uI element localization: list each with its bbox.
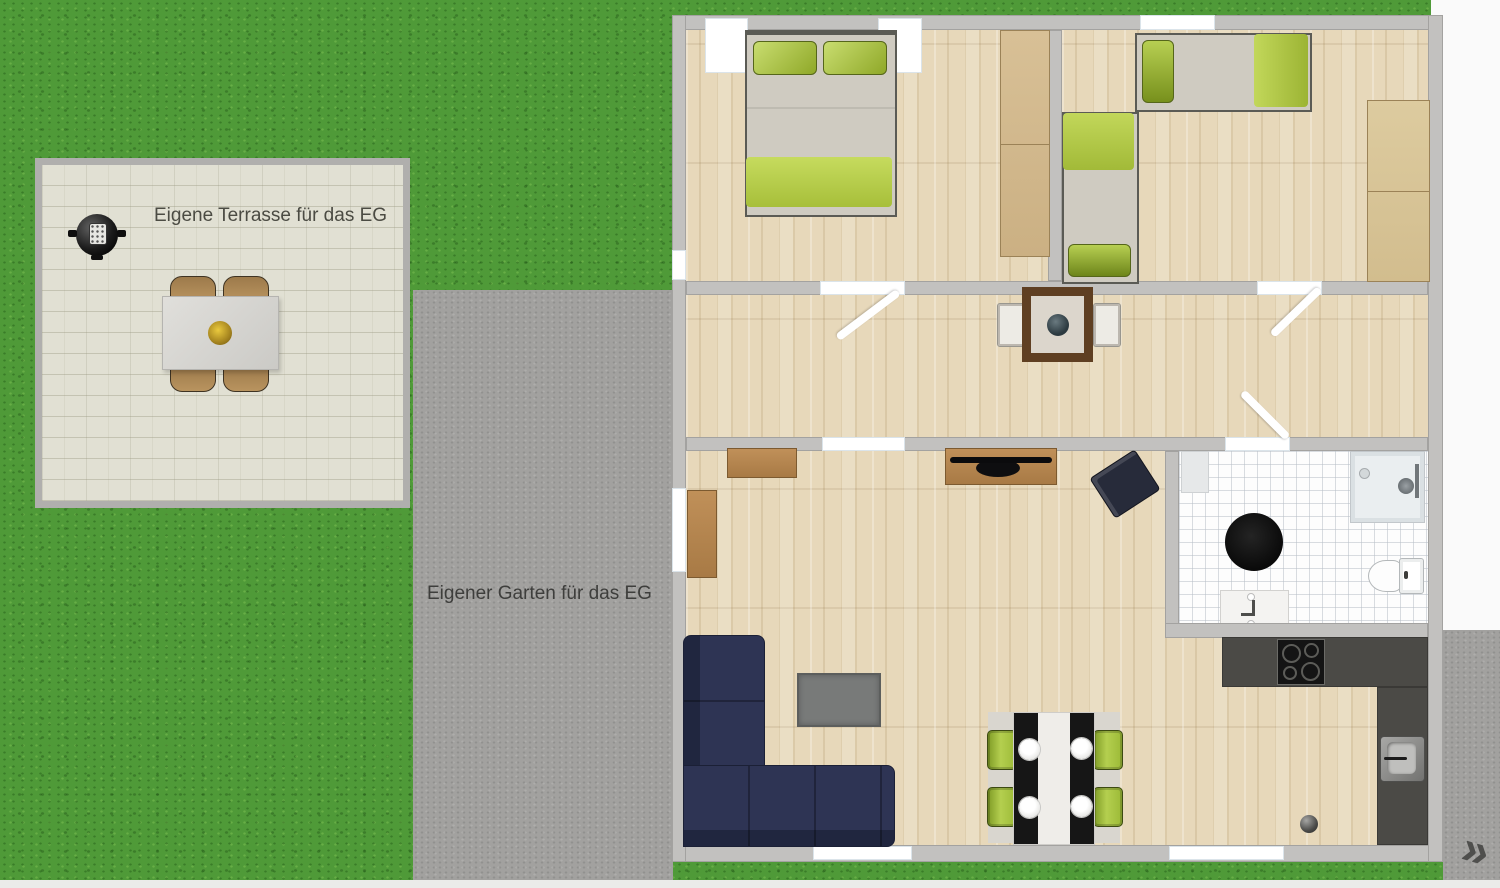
tv-lowboard <box>945 448 1057 485</box>
floor-plan-canvas: Eigener Garten für das EG Eigene Terrass… <box>0 0 1500 888</box>
garden-path: Eigener Garten für das EG <box>413 290 673 888</box>
window <box>1140 15 1215 30</box>
garden-table <box>162 296 279 370</box>
burner-icon <box>1304 643 1319 658</box>
toilet-tank <box>1399 558 1424 594</box>
garden-label: Eigener Garten für das EG <box>427 583 672 605</box>
shower <box>1350 451 1425 523</box>
background-top-right <box>1431 0 1500 15</box>
stool-icon <box>1300 815 1318 833</box>
single-bed <box>1062 112 1139 284</box>
bathroom <box>1179 451 1428 623</box>
burner-icon <box>1283 666 1297 680</box>
door-opening-living <box>822 437 905 451</box>
pillow <box>753 41 817 75</box>
dining-chair <box>1093 730 1123 770</box>
cooktop <box>1277 639 1325 685</box>
door-opening-bathroom <box>1225 437 1290 451</box>
bowl-icon <box>208 321 232 345</box>
bistro-table <box>1022 287 1093 362</box>
wall-living-bathroom <box>1165 451 1179 638</box>
kitchen-sink <box>1380 736 1425 782</box>
table-runner <box>1014 713 1038 844</box>
shower-head-icon <box>1398 478 1414 494</box>
faucet-icon <box>1384 757 1407 760</box>
wall-hallway-living <box>686 437 1428 451</box>
terrace-label: Eigene Terrasse für das EG <box>154 205 420 227</box>
apartment <box>672 15 1443 862</box>
blanket <box>1063 113 1134 170</box>
window <box>813 846 912 860</box>
burner-icon <box>1301 662 1320 681</box>
hall-chair <box>1093 303 1121 347</box>
grill-grate <box>89 223 107 245</box>
wardrobe <box>1367 100 1430 282</box>
window <box>1169 846 1284 860</box>
toilet <box>1368 558 1424 594</box>
wardrobe <box>1000 30 1050 257</box>
burner-icon <box>1282 644 1301 663</box>
grill-icon <box>76 214 118 256</box>
wall-right <box>1428 15 1443 862</box>
wall-bathroom-kitchen <box>1165 623 1428 638</box>
plate-icon <box>1019 797 1040 818</box>
corner-sofa <box>683 765 895 847</box>
double-bed <box>745 30 897 217</box>
wall-bottom <box>672 845 1443 862</box>
pillow <box>1142 40 1174 103</box>
kitchen-counter <box>1222 637 1428 687</box>
hall-chair <box>997 303 1025 347</box>
round-rug <box>1225 513 1283 571</box>
sideboard <box>727 448 797 478</box>
toilet-flush <box>1404 571 1408 579</box>
background-right <box>1443 15 1500 630</box>
wall-between-bedrooms <box>1048 30 1062 281</box>
plate-icon <box>1071 796 1092 817</box>
cabinet <box>687 490 717 578</box>
grill-handle <box>91 255 103 260</box>
faucet-icon <box>1241 613 1255 616</box>
wall-top <box>672 15 1443 30</box>
bathroom-shelf <box>1181 451 1209 493</box>
pillow <box>1068 244 1131 277</box>
coffee-table <box>797 673 881 727</box>
single-bed <box>1135 33 1312 112</box>
shower-drain <box>1359 468 1370 479</box>
dining-chair <box>1093 787 1123 827</box>
plate-icon <box>1071 738 1092 759</box>
dining-table <box>1013 712 1095 845</box>
pillow <box>823 41 887 75</box>
shower-pole <box>1415 464 1419 498</box>
table-runner <box>1070 713 1094 844</box>
window <box>705 18 748 73</box>
blanket <box>746 157 892 207</box>
bowl-icon <box>1047 314 1069 336</box>
viewport-edge <box>0 880 1500 888</box>
tv-icon <box>950 457 1052 463</box>
blanket <box>1254 34 1308 107</box>
window <box>672 488 686 572</box>
window <box>672 250 686 280</box>
plate-icon <box>1019 739 1040 760</box>
terrace: Eigene Terrasse für das EG <box>35 158 410 508</box>
